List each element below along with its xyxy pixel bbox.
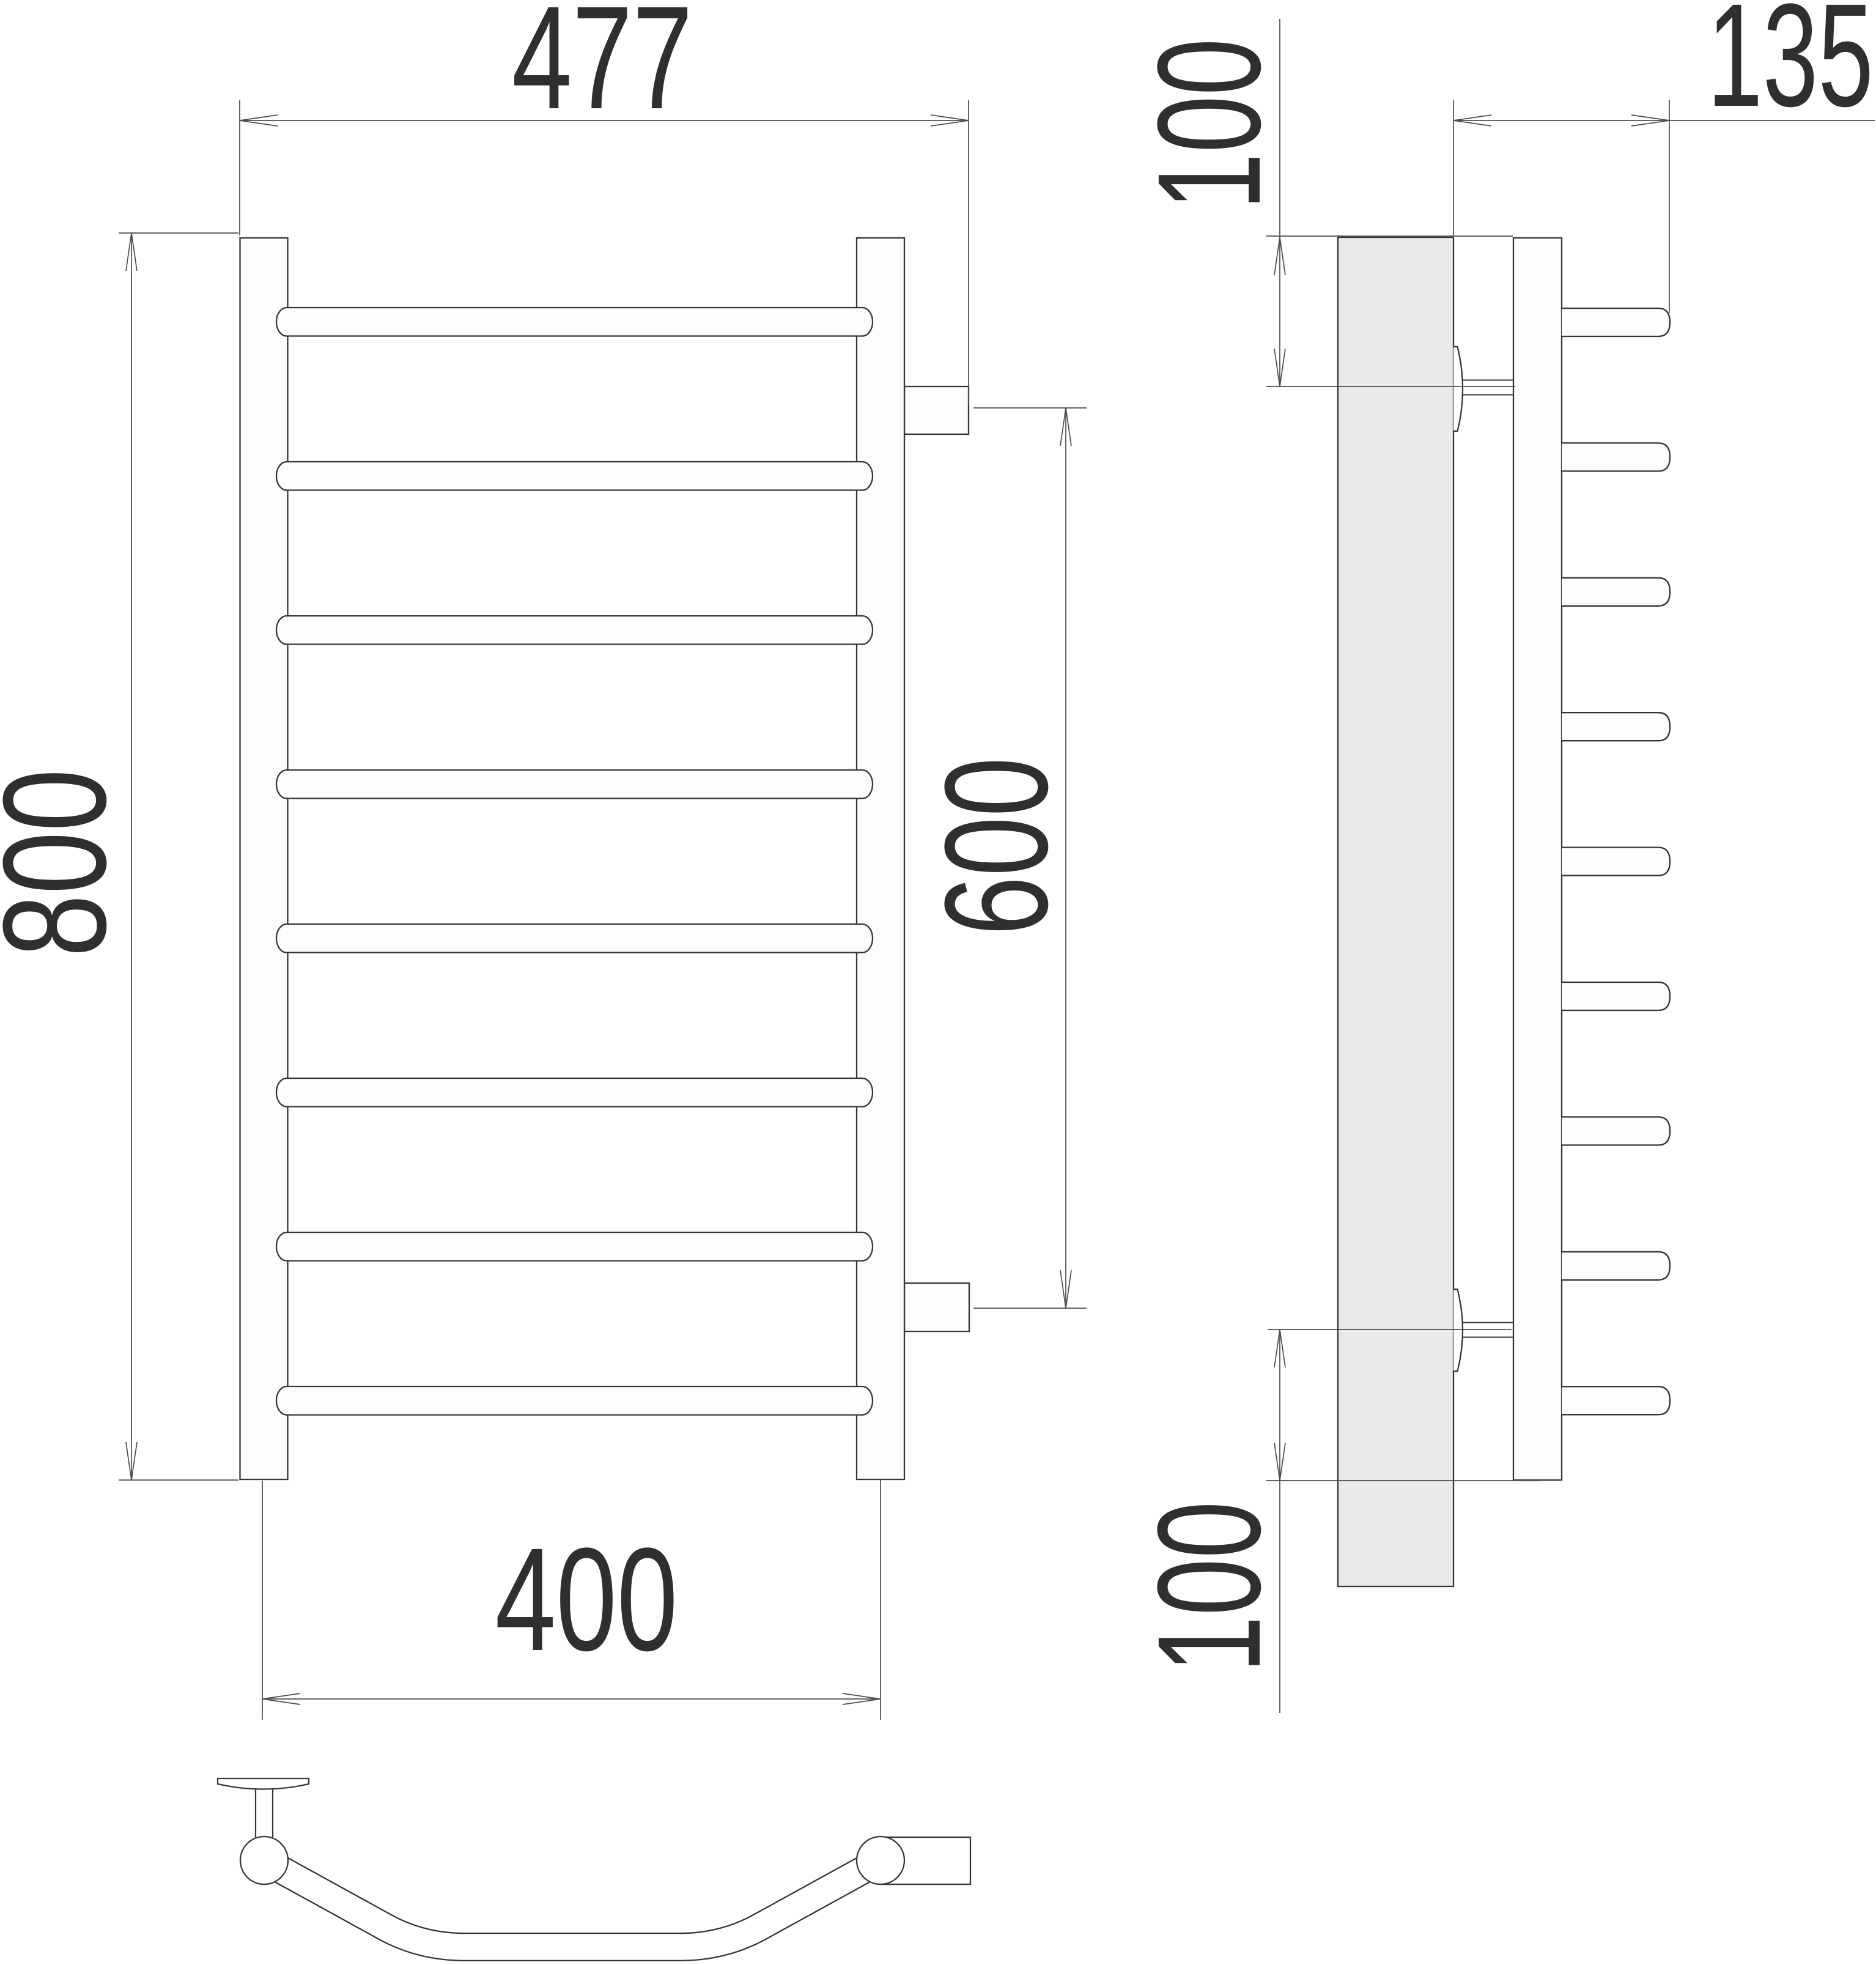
svg-text:800: 800	[0, 769, 136, 957]
svg-text:400: 400	[495, 1517, 678, 1681]
svg-text:100: 100	[1127, 1501, 1291, 1673]
svg-text:135: 135	[1707, 0, 1874, 137]
svg-text:600: 600	[914, 757, 1078, 936]
svg-text:477: 477	[512, 0, 693, 139]
svg-text:100: 100	[1127, 39, 1291, 210]
